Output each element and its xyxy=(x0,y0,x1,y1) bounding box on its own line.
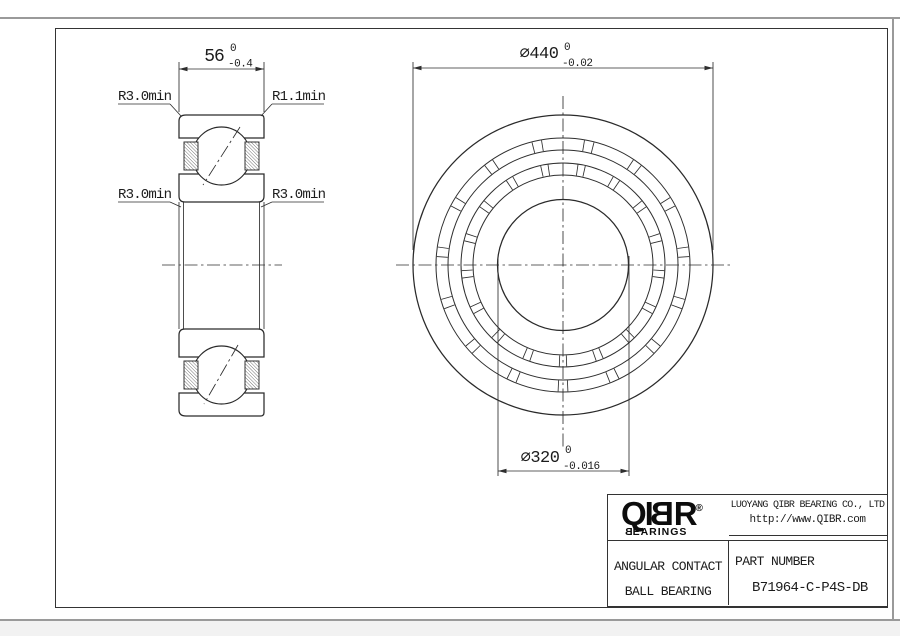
part-number-cell: PART NUMBER B71964-C-P4S-DB xyxy=(729,541,887,605)
brand-logo: QIBR® BEARINGS xyxy=(621,497,703,538)
width-dimension: 56 0 -0.4 xyxy=(179,43,264,112)
od-tol-upper: 0 xyxy=(564,42,570,54)
bore-tol-lower: -0.016 xyxy=(563,461,600,473)
title-block-header-row: QIBR® BEARINGS LUOYANG QIBR BEARING CO.,… xyxy=(608,495,887,541)
bore-diameter-dimension: ∅320 0 -0.016 xyxy=(498,256,629,476)
cage-lower-left xyxy=(184,361,198,389)
bearing-type-cell: ANGULAR CONTACT BALL BEARING xyxy=(608,541,729,605)
width-tol-lower: -0.4 xyxy=(228,59,253,71)
od-value: ∅440 xyxy=(520,45,559,64)
bore-lines xyxy=(179,202,264,329)
width-value: 56 xyxy=(204,47,224,67)
registered-mark: ® xyxy=(696,503,703,514)
logo-mirrored-b: B xyxy=(652,497,674,530)
ball-lower xyxy=(193,346,251,404)
label-r-bottom-right: R3.0min xyxy=(272,187,326,203)
bearing-front-view: ∅440 0 -0.02 ∅320 0 -0.016 xyxy=(396,42,731,476)
cage-lower-right xyxy=(245,361,259,389)
bore-tol-upper: 0 xyxy=(565,445,571,457)
upper-section xyxy=(179,115,264,202)
part-number-value: B71964-C-P4S-DB xyxy=(752,580,868,596)
company-cell-divider xyxy=(729,535,887,536)
bore-value: ∅320 xyxy=(521,449,560,468)
width-tol-upper: 0 xyxy=(230,43,236,55)
bearing-type-line1: ANGULAR CONTACT xyxy=(608,554,728,579)
title-block-detail-row: ANGULAR CONTACT BALL BEARING PART NUMBER… xyxy=(608,541,887,605)
company-website: http://www.QIBR.com xyxy=(729,514,886,526)
company-info: LUOYANG QIBR BEARING CO., LTD http://www… xyxy=(729,500,886,526)
company-name: LUOYANG QIBR BEARING CO., LTD xyxy=(729,500,886,511)
cage-upper-right xyxy=(245,142,259,170)
od-tol-lower: -0.02 xyxy=(562,58,593,70)
bearing-cross-section-view: 56 0 -0.4 R3.0min R1.1min R3.0min R3.0mi… xyxy=(118,43,326,416)
label-r-top-left: R3.0min xyxy=(118,89,172,105)
label-r-bottom-left: R3.0min xyxy=(118,187,172,203)
cage-upper-left xyxy=(184,142,198,170)
lower-section xyxy=(179,329,264,416)
label-r-top-right: R1.1min xyxy=(272,89,326,105)
part-number-label: PART NUMBER xyxy=(735,554,814,569)
drawing-sheet: 56 0 -0.4 R3.0min R1.1min R3.0min R3.0mi… xyxy=(0,0,900,636)
bearing-type-line2: BALL BEARING xyxy=(608,579,728,604)
title-block: QIBR® BEARINGS LUOYANG QIBR BEARING CO.,… xyxy=(607,494,888,607)
